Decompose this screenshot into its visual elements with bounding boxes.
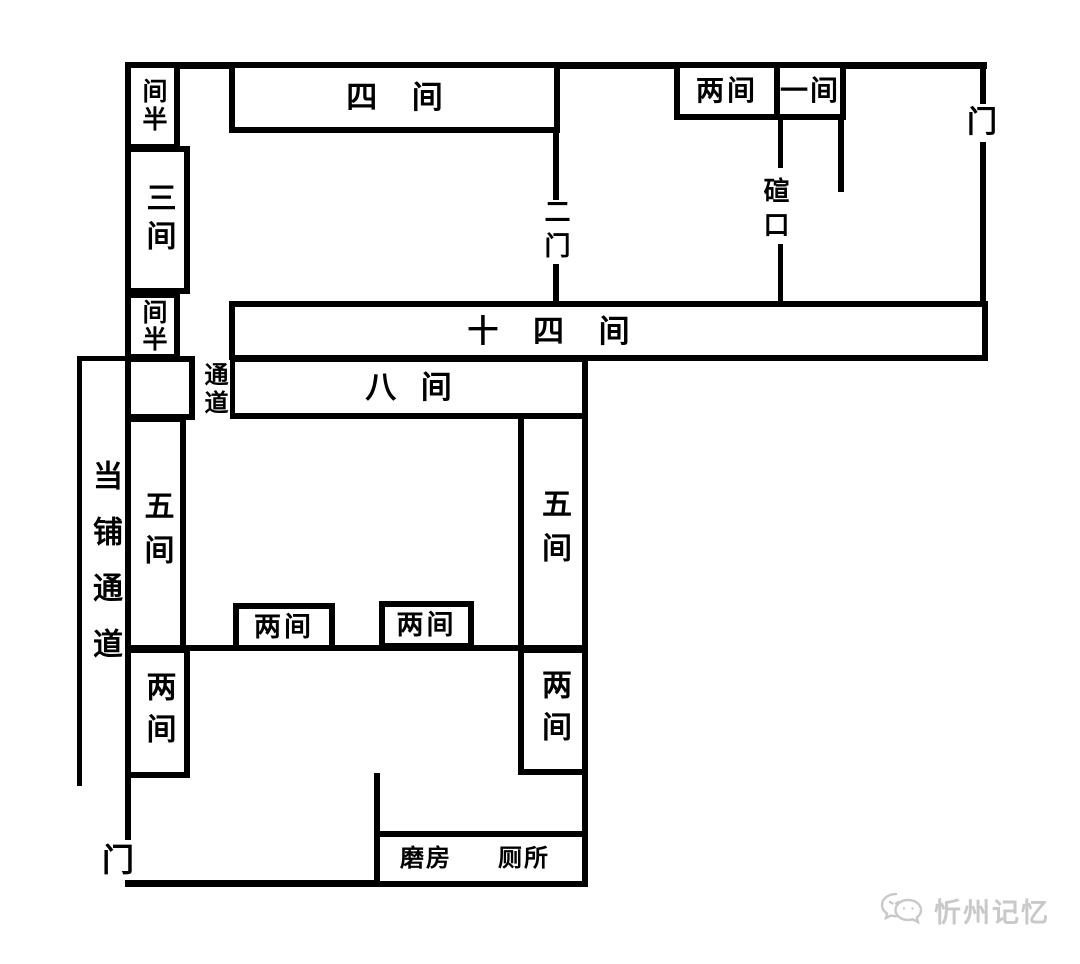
room-wujian-right-label: 五间 [538,488,568,576]
room-liangjian-right: 两间 [518,647,588,775]
dangpu-passage-top-cap [77,356,131,361]
door-top-right-text: 门 [967,108,997,138]
room-liangjian-top-label: 两间 [696,77,758,105]
room-jianban-mid: 间半 [125,292,180,360]
room-liangjian-small-1: 两间 [233,603,335,651]
room-mofang-cesuo: 磨房 厕所 [374,831,588,887]
room-liangjian-right-label: 两间 [538,669,568,753]
room-liangjian-yijian: 两间 一间 [674,62,846,120]
room-jianban-top: 间半 [125,62,180,150]
room-wujian-left-label: 五间 [141,490,171,578]
room-sijian: 四 间 [229,62,560,133]
room-yijian-label: 一间 [780,77,840,105]
room-jianban-top-label: 间半 [140,78,165,134]
room-mofang-label: 磨房 [400,847,452,871]
wall-right-column-extension [582,769,588,835]
room-shisijian-label: 十 四 间 [467,316,629,347]
wall-right-lower [980,140,986,307]
room-shisijian: 十 四 间 [229,301,988,361]
floor-plan: 间半 三间 间半 五间 两间 四 间 两间 一间 十 四 间 八 间 五间 两间… [0,0,1080,964]
room-wujian-left: 五间 [125,416,186,651]
wall-bottom [125,880,380,887]
room-cesuo-label: 厕所 [498,847,550,871]
gate-ermen-label: 二门 [539,200,573,264]
wall-right-upper [980,62,986,106]
gate-ermen-text: 二门 [543,198,569,266]
yijian-side-wall [838,114,844,192]
passage-dangpu-text: 当铺通道 [89,460,119,684]
xuankou-line-upper [778,114,783,168]
room-jianban-mid-label: 间半 [140,299,165,353]
room-bajian: 八 间 [229,356,588,419]
watermark: 忻州记忆 [878,890,1050,930]
wall-left-lower-extension [125,772,131,842]
room-liangjian-left-label: 两间 [143,671,173,755]
passage-tongdao-text: 通道 [201,362,225,418]
room-yijian-cell: 一间 [774,68,840,114]
watermark-text: 忻州记忆 [934,891,1050,930]
room-liangjian-small-2: 两间 [379,601,474,649]
door-top-right-label: 门 [962,104,1002,142]
passage-box-empty [125,356,195,420]
wechat-logo-icon [878,890,928,930]
door-bottom-left-text: 门 [102,844,134,876]
room-wujian-right: 五间 [518,413,588,651]
gate-xuankou-text: 碹口 [762,177,788,245]
gate-xuankou-label: 碹口 [758,178,792,244]
door-bottom-left-label: 门 [98,840,138,880]
room-liangjian-small-1-label: 两间 [254,614,314,641]
passage-tongdao-label: 通道 [196,360,230,420]
room-sijian-label: 四 间 [346,82,443,113]
room-sanjian: 三间 [125,146,190,294]
room-liangjian-top-cell: 两间 [680,68,774,114]
dangpu-passage-left-wall [77,356,82,786]
mofang-left-wall [374,773,380,835]
room-sanjian-label: 三间 [143,182,173,258]
room-liangjian-left: 两间 [125,647,190,778]
room-liangjian-small-2-label: 两间 [397,612,457,639]
passage-dangpu-label: 当铺通道 [84,452,124,692]
room-bajian-label: 八 间 [365,372,452,403]
xuankou-line-lower [778,242,783,307]
